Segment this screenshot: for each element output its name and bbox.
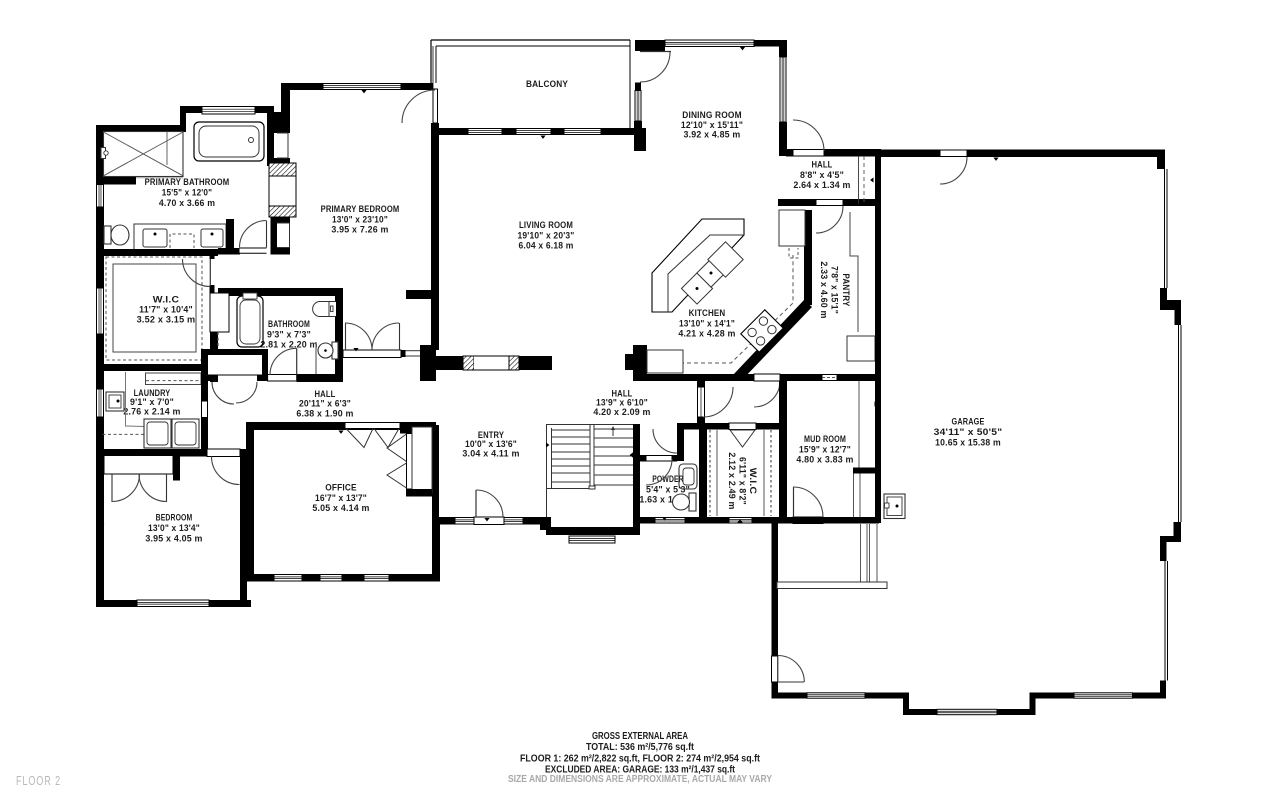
svg-text:13'0" x 23'10": 13'0" x 23'10": [332, 214, 388, 224]
svg-text:20'11" x 6'3": 20'11" x 6'3": [299, 399, 351, 409]
svg-text:3.04 x 4.11 m: 3.04 x 4.11 m: [462, 448, 519, 458]
svg-text:2.12 x 2.49 m: 2.12 x 2.49 m: [727, 452, 737, 509]
svg-text:11'7" x 10'4": 11'7" x 10'4": [139, 305, 193, 315]
svg-text:5.05 x 4.14 m: 5.05 x 4.14 m: [312, 503, 369, 513]
svg-text:15'9" x 12'7": 15'9" x 12'7": [799, 444, 851, 454]
svg-text:4.21 x 4.28 m: 4.21 x 4.28 m: [678, 329, 735, 339]
svg-text:3.52 x 3.15 m: 3.52 x 3.15 m: [137, 315, 196, 325]
svg-text:FLOOR 1: 262 m²/2,822 sq.ft, F: FLOOR 1: 262 m²/2,822 sq.ft, FLOOR 2: 27…: [520, 753, 761, 764]
svg-text:10.65 x 15.38 m: 10.65 x 15.38 m: [935, 437, 1001, 447]
svg-text:4.20 x 2.09 m: 4.20 x 2.09 m: [593, 407, 650, 417]
svg-text:2.33 x 4.60 m: 2.33 x 4.60 m: [819, 261, 829, 318]
svg-text:13'0" x 13'4": 13'0" x 13'4": [148, 523, 200, 533]
svg-text:HALL: HALL: [315, 389, 336, 399]
svg-text:2.76 x 2.14 m: 2.76 x 2.14 m: [123, 406, 180, 416]
svg-text:OFFICE: OFFICE: [325, 483, 357, 493]
svg-text:W.I.C: W.I.C: [153, 295, 180, 305]
svg-text:BALCONY: BALCONY: [526, 79, 568, 89]
svg-text:PRIMARY BEDROOM: PRIMARY BEDROOM: [321, 204, 400, 214]
svg-text:6.04 x 6.18 m: 6.04 x 6.18 m: [519, 241, 574, 251]
svg-text:15'5" x 12'0": 15'5" x 12'0": [162, 187, 213, 197]
svg-text:16'7" x 13'7": 16'7" x 13'7": [315, 493, 367, 503]
svg-text:TOTAL: 536 m²/5,776 sq.ft: TOTAL: 536 m²/5,776 sq.ft: [586, 742, 695, 753]
svg-text:19'10" x 20'3": 19'10" x 20'3": [518, 230, 575, 240]
svg-text:3.95 x 4.05 m: 3.95 x 4.05 m: [145, 533, 202, 543]
svg-text:KITCHEN: KITCHEN: [689, 308, 726, 318]
svg-text:BATHROOM: BATHROOM: [268, 319, 310, 329]
svg-text:3.95 x 7.26 m: 3.95 x 7.26 m: [331, 225, 388, 235]
svg-text:4.70 x 3.66 m: 4.70 x 3.66 m: [159, 198, 215, 208]
svg-text:7'8" x 15'1": 7'8" x 15'1": [830, 266, 840, 314]
svg-text:LIVING ROOM: LIVING ROOM: [519, 220, 573, 230]
svg-text:8'8" x 4'5": 8'8" x 4'5": [800, 170, 844, 180]
svg-text:W.I.C: W.I.C: [748, 468, 758, 495]
svg-text:MUD ROOM: MUD ROOM: [804, 434, 846, 444]
svg-text:FLOOR 2: FLOOR 2: [16, 773, 61, 788]
svg-text:GARAGE: GARAGE: [952, 417, 985, 427]
svg-text:34'11" x 50'5": 34'11" x 50'5": [934, 427, 1003, 437]
svg-text:9'3" x 7'3": 9'3" x 7'3": [267, 329, 311, 339]
svg-text:6'11" x 8'2": 6'11" x 8'2": [738, 457, 748, 505]
svg-text:PANTRY: PANTRY: [841, 274, 851, 307]
svg-text:2.81 x 2.20 m: 2.81 x 2.20 m: [260, 340, 317, 350]
svg-text:GROSS EXTERNAL AREA: GROSS EXTERNAL AREA: [592, 731, 688, 742]
svg-text:3.92 x 4.85 m: 3.92 x 4.85 m: [684, 130, 741, 140]
svg-text:BEDROOM: BEDROOM: [156, 513, 193, 523]
svg-text:2.64 x 1.34 m: 2.64 x 1.34 m: [793, 180, 850, 190]
svg-text:PRIMARY BATHROOM: PRIMARY BATHROOM: [145, 177, 230, 187]
svg-text:12'10" x 15'11": 12'10" x 15'11": [681, 120, 743, 130]
svg-text:SIZE AND DIMENSIONS ARE APPROX: SIZE AND DIMENSIONS ARE APPROXIMATE, ACT…: [508, 774, 772, 785]
svg-text:6.38 x 1.90 m: 6.38 x 1.90 m: [296, 408, 353, 418]
svg-text:4.80 x 3.83 m: 4.80 x 3.83 m: [796, 455, 853, 465]
svg-text:DINING ROOM: DINING ROOM: [682, 110, 742, 120]
svg-text:13'10" x 14'1": 13'10" x 14'1": [679, 318, 735, 328]
svg-text:HALL: HALL: [812, 160, 833, 170]
